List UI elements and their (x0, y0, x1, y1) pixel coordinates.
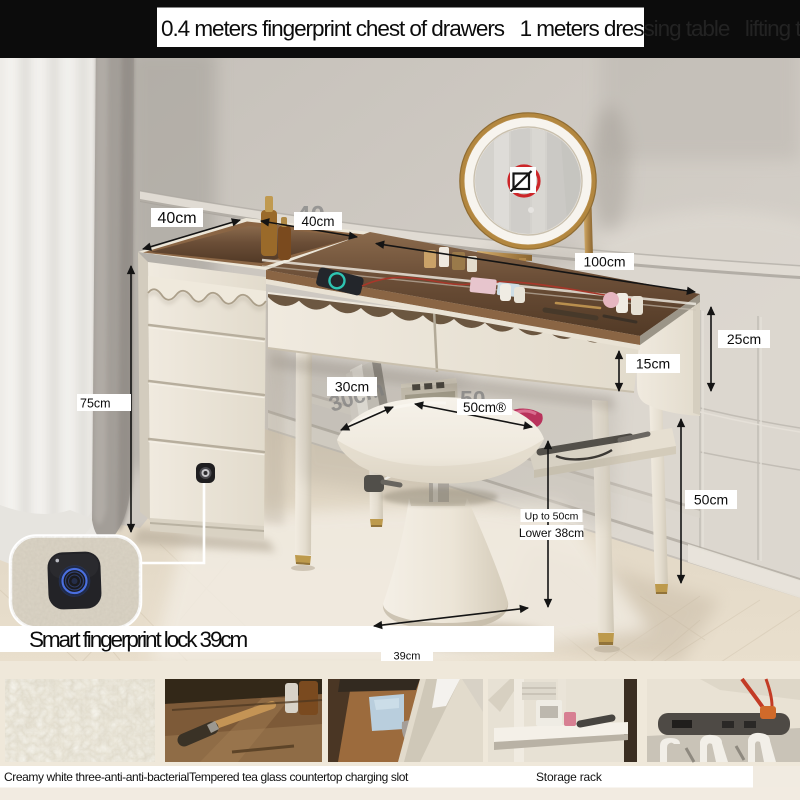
svg-text:40cm: 40cm (301, 214, 334, 229)
svg-text:Storage rack: Storage rack (536, 770, 603, 784)
svg-text:Up to 50cm: Up to 50cm (525, 511, 579, 523)
svg-text:50cm®: 50cm® (463, 400, 506, 415)
svg-text:25cm: 25cm (727, 331, 761, 347)
svg-text:50cm: 50cm (694, 492, 728, 508)
svg-text:Creamy white three-anti-anti-b: Creamy white three-anti-anti-bacterial (4, 770, 189, 784)
svg-text:75cm: 75cm (80, 397, 111, 411)
svg-text:Smart fingerprint lock 39cm: Smart fingerprint lock 39cm (29, 627, 248, 652)
svg-text:Lower 38cm: Lower 38cm (519, 526, 584, 540)
svg-text:30cm: 30cm (335, 379, 369, 395)
svg-text:15cm: 15cm (636, 356, 670, 372)
svg-text:Tempered tea glass countertop: Tempered tea glass countertop charging s… (189, 770, 409, 784)
svg-text:40cm: 40cm (157, 210, 196, 227)
svg-text:100cm: 100cm (583, 254, 625, 270)
svg-text:39cm: 39cm (394, 651, 421, 663)
